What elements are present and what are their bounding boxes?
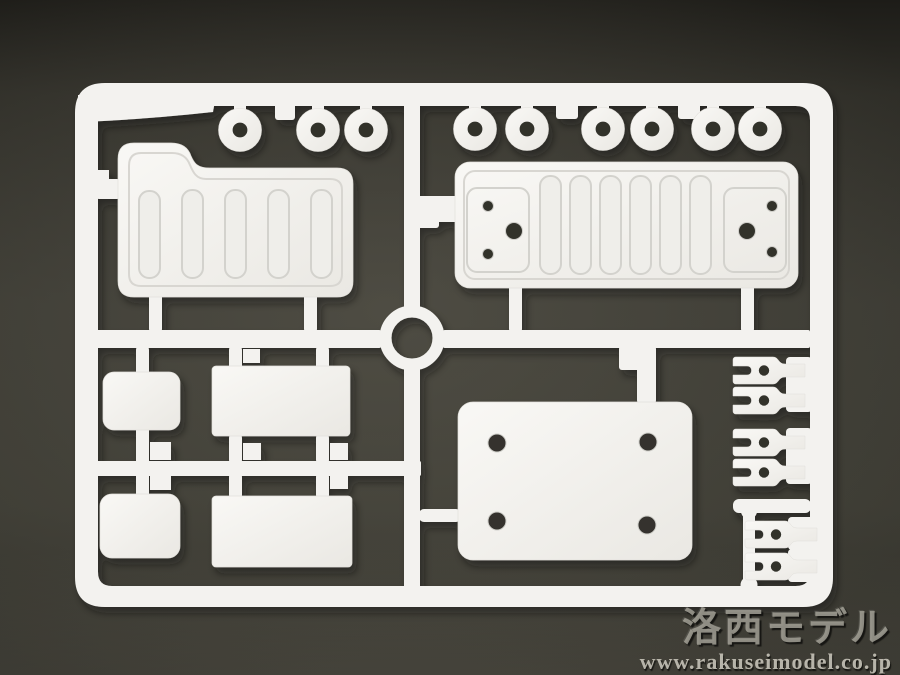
molding-tag [78,95,216,122]
rib-groove [139,191,160,278]
plate-hole [488,434,506,452]
small-rect-plate [212,496,352,567]
gate-stub [229,434,242,464]
sprue-runner-photo [0,0,900,675]
small-rect-plate [212,366,350,436]
rib-groove [268,190,289,278]
gate-stub [637,362,656,406]
gate-stub [419,509,461,522]
rib-groove [225,190,246,278]
grommet [631,101,674,151]
gate-stub [509,282,522,334]
rib-groove [540,176,561,274]
rib-groove [311,190,332,278]
plate-hole [638,516,656,534]
watermark: 洛西モデル www.rakuseimodel.co.jp [640,609,892,673]
gate-stub [316,473,329,499]
rib-groove [660,176,681,274]
grommet [297,102,340,152]
part-ribbed-plate [455,162,798,288]
grommet [582,101,625,151]
plate-hole [767,247,778,258]
grommet-group-left [219,102,388,152]
gate-stub [136,346,149,376]
runner-mid-left [96,330,381,348]
gate-tab [330,474,348,489]
grommet [506,101,549,151]
gate-tab [150,442,171,460]
plate-hole [639,433,657,451]
mounting-plate-body [458,402,692,560]
rib-groove [630,176,651,274]
gate-stub [229,473,242,499]
gate-tab [243,349,260,363]
rail-tab [275,102,295,120]
grommet [739,101,782,151]
part-ribbed-cover [118,143,353,297]
plate-hole [506,223,523,240]
runner-mid-right [443,330,810,348]
watermark-brand: 洛西モデル [640,609,892,650]
runner-center-ring [386,312,439,365]
rib-groove [570,176,591,274]
gate-tab [243,443,261,460]
grommet [345,102,388,152]
rib-groove [690,176,711,274]
plate-hole [767,201,778,212]
part-mounting-plate [458,402,692,560]
gate-stub [97,170,109,181]
rail-tab [556,100,578,119]
grommet [454,101,497,151]
runner-vertical-bottom [404,369,420,588]
gate-stub [96,179,120,199]
watermark-url: www.rakuseimodel.co.jp [640,650,892,673]
gate-stub [316,434,329,464]
small-rounded-plate [103,372,180,430]
rib-groove [600,176,621,274]
small-rounded-plate [100,494,180,558]
plate-hole [488,512,506,530]
plate-hole [739,223,756,240]
grommet [219,102,262,152]
gate-stub [741,282,754,334]
rib-groove [182,190,203,278]
plate-hole [483,201,494,212]
gate-ball [741,503,757,519]
gate-tab [150,476,171,490]
gate-stub [417,196,439,228]
gate-tab [330,443,348,460]
plate-hole [483,249,494,260]
photo-scene: 洛西モデル www.rakuseimodel.co.jp [0,0,900,675]
grommet-group-right [454,101,782,151]
gate-stub [136,426,149,498]
